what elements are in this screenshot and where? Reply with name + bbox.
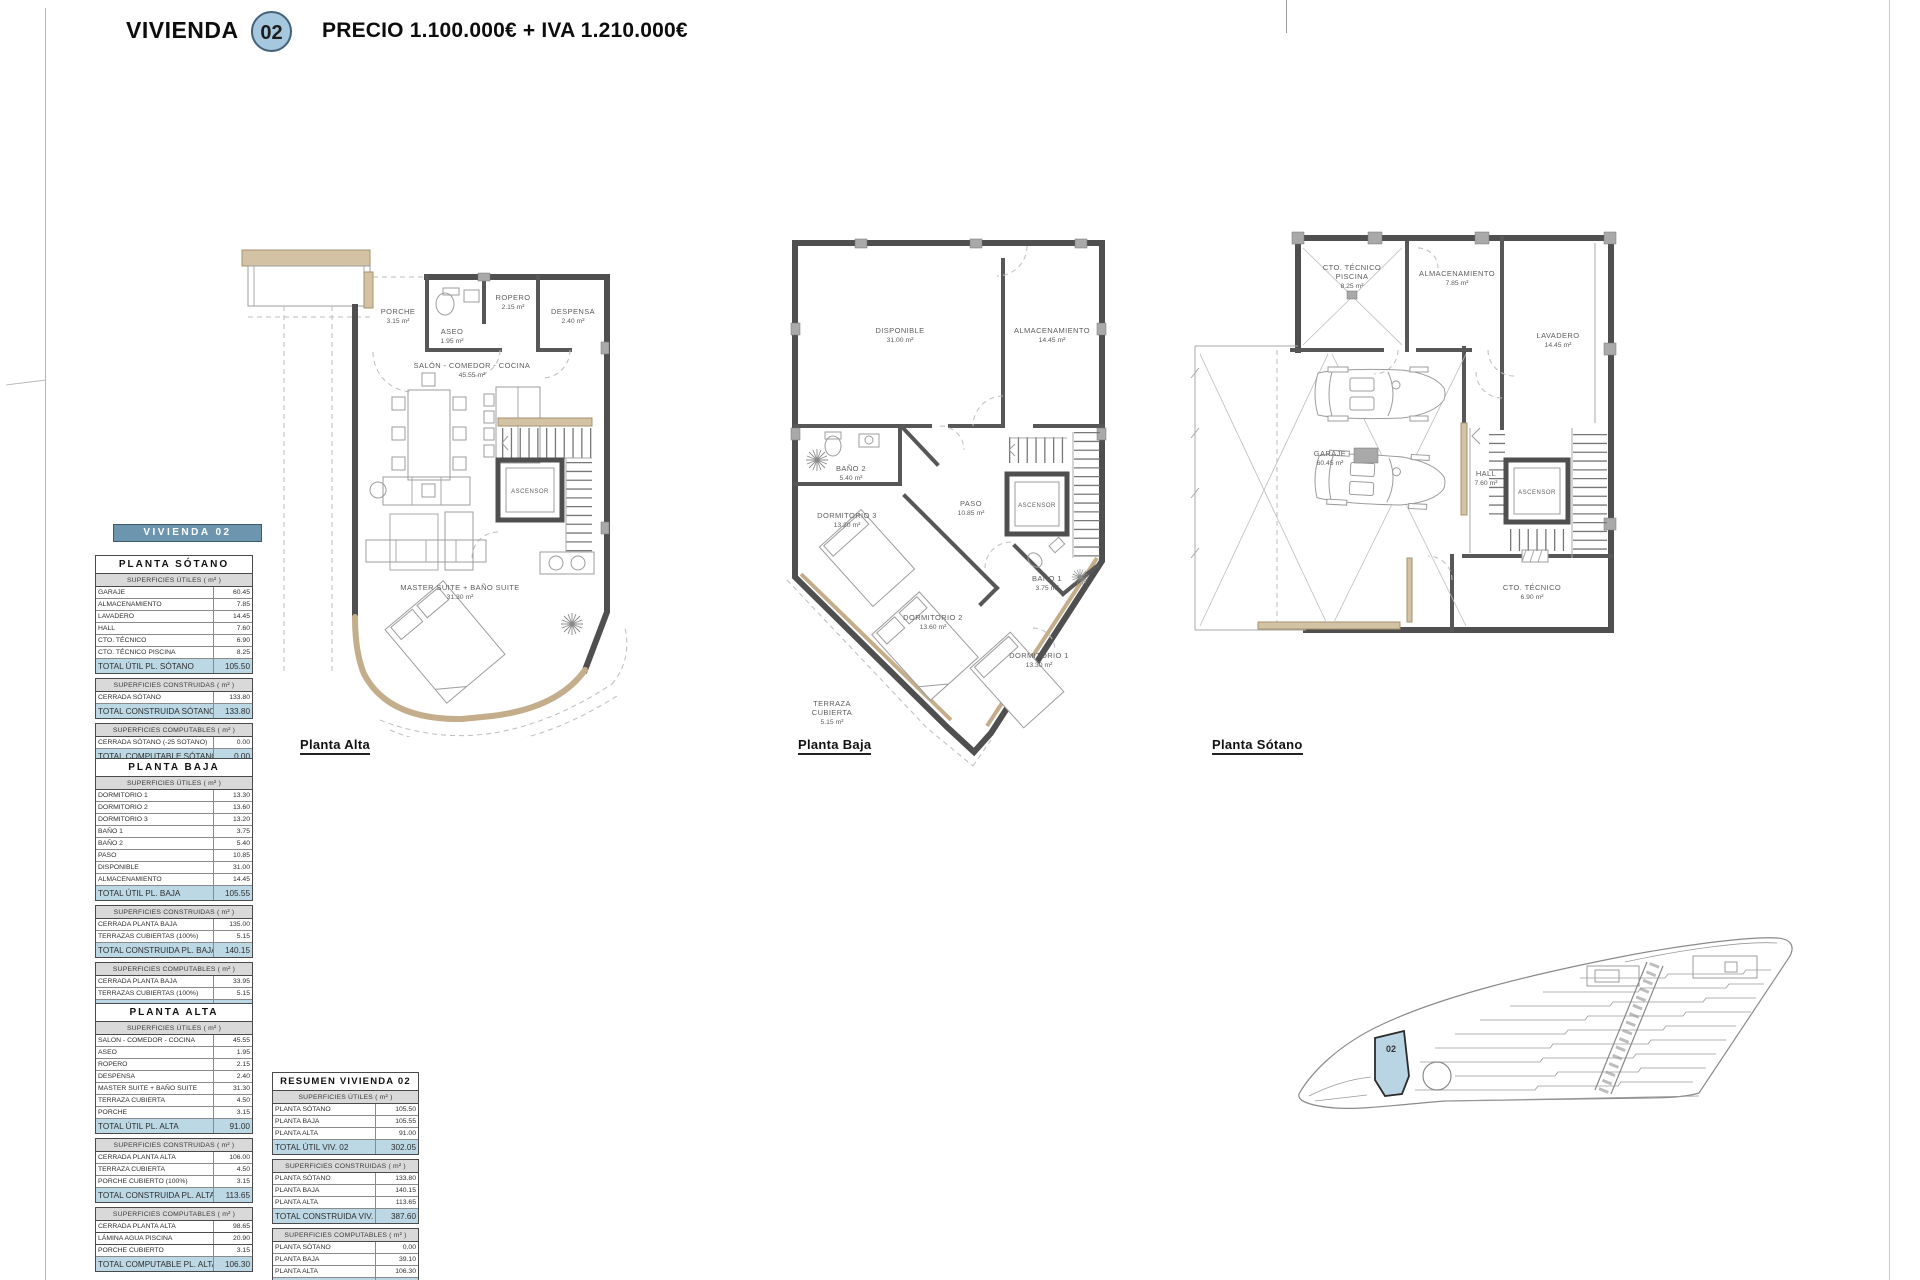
- row-value: 140.15: [376, 1185, 418, 1196]
- svg-text:3.75 m²: 3.75 m²: [1035, 585, 1059, 592]
- svg-text:PASO: PASO: [960, 499, 982, 508]
- table-row: CERRADA SÓTANO133.80: [96, 692, 252, 704]
- table-row: DORMITORIO 213.60: [96, 802, 252, 814]
- row-value: 20.90: [214, 1233, 252, 1244]
- table-row: PLANTA ALTA106.30: [273, 1266, 418, 1278]
- table-total-row: TOTAL CONSTRUIDA PL. BAJA140.15: [96, 943, 252, 957]
- table-row: PLANTA ALTA91.00: [273, 1128, 418, 1140]
- row-label: TERRAZAS CUBIERTAS (100%): [96, 988, 214, 999]
- plan-caption-baja: Planta Baja: [798, 737, 871, 755]
- row-value: 5.15: [214, 931, 252, 942]
- row-label: MASTER SUITE + BAÑO SUITE: [96, 1083, 214, 1094]
- svg-text:DORMITORIO 2: DORMITORIO 2: [903, 613, 963, 622]
- row-label: BAÑO 2: [96, 838, 214, 849]
- row-value: 10.85: [214, 850, 252, 861]
- table-section: SUPERFICIES CONSTRUIDAS ( m² )PLANTA SÓT…: [272, 1159, 419, 1224]
- row-label: TOTAL ÚTIL VIV. 02: [273, 1140, 376, 1154]
- svg-text:PISCINA: PISCINA: [1336, 272, 1369, 281]
- left-border-line: [45, 8, 46, 1280]
- table-row: PLANTA SÓTANO133.80: [273, 1173, 418, 1185]
- row-label: PORCHE CUBIERTO (100%): [96, 1176, 214, 1187]
- floor-plan-sotano-drawing: ASCENSOR CTO. TÉCNICO PISCINA 8.25 m² AL…: [1170, 218, 1630, 703]
- row-value: 13.60: [214, 802, 252, 813]
- svg-text:PORCHE: PORCHE: [381, 307, 416, 316]
- row-label: ASEO: [96, 1047, 214, 1058]
- svg-text:10.85 m²: 10.85 m²: [958, 510, 986, 517]
- row-value: 91.00: [214, 1119, 252, 1133]
- row-label: CERRADA PLANTA BAJA: [96, 976, 214, 987]
- row-label: LÁMINA AGUA PISCINA: [96, 1233, 214, 1244]
- svg-text:60.45 m²: 60.45 m²: [1317, 460, 1345, 467]
- svg-text:2.40 m²: 2.40 m²: [561, 318, 585, 325]
- table-row: PLANTA SÓTANO105.50: [273, 1104, 418, 1116]
- svg-text:3.15 m²: 3.15 m²: [386, 318, 410, 325]
- row-label: DORMITORIO 2: [96, 802, 214, 813]
- table-section-header: SUPERFICIES COMPUTABLES ( m² ): [273, 1229, 418, 1242]
- row-label: TOTAL ÚTIL PL. BAJA: [96, 886, 214, 900]
- row-value: 135.00: [214, 919, 252, 930]
- table-section-header: SUPERFICIES ÚTILES ( m² ): [96, 574, 252, 587]
- row-value: 33.95: [214, 976, 252, 987]
- row-label: ALMACENAMIENTO: [96, 599, 214, 610]
- bed: [872, 592, 978, 700]
- table-total-row: TOTAL CONSTRUIDA PL. ALTA113.65: [96, 1188, 252, 1202]
- table-row: DESPENSA2.40: [96, 1071, 252, 1083]
- table-row: PLANTA SÓTANO0.00: [273, 1242, 418, 1254]
- elevator-box: ASCENSOR: [498, 460, 562, 520]
- svg-text:2.15 m²: 2.15 m²: [501, 304, 525, 311]
- car-icon: [1314, 450, 1447, 511]
- table-row: TERRAZAS CUBIERTAS (100%)5.15: [96, 988, 252, 1000]
- row-label: CERRADA PLANTA ALTA: [96, 1152, 214, 1163]
- floor-plan-alta-drawing: ASCENSOR: [240, 222, 635, 737]
- table-total-row: TOTAL ÚTIL PL. BAJA105.55: [96, 886, 252, 900]
- table-row: TERRAZA CUBIERTA4.50: [96, 1164, 252, 1176]
- table-section: PLANTA BAJASUPERFICIES ÚTILES ( m² )DORM…: [95, 758, 253, 901]
- row-label: CERRADA SÓTANO: [96, 692, 214, 703]
- row-value: 105.55: [376, 1116, 418, 1127]
- svg-text:ROPERO: ROPERO: [496, 293, 531, 302]
- row-label: DORMITORIO 3: [96, 814, 214, 825]
- table-row: LAVADERO14.45: [96, 611, 252, 623]
- table-row: ALMACENAMIENTO14.45: [96, 874, 252, 886]
- row-value: 91.00: [376, 1128, 418, 1139]
- row-label: PLANTA SÓTANO: [273, 1242, 376, 1253]
- table-section: RESUMEN VIVIENDA 02SUPERFICIES ÚTILES ( …: [272, 1072, 419, 1155]
- row-label: TOTAL CONSTRUIDA SÓTANO: [96, 704, 214, 718]
- table-row: TERRAZAS CUBIERTAS (100%)5.15: [96, 931, 252, 943]
- svg-text:DESPENSA: DESPENSA: [551, 307, 595, 316]
- price-text: PRECIO 1.100.000€ + IVA 1.210.000€: [322, 19, 688, 43]
- table-resumen-vivienda-02: RESUMEN VIVIENDA 02SUPERFICIES ÚTILES ( …: [272, 1072, 419, 1280]
- svg-text:13.60 m²: 13.60 m²: [920, 624, 948, 631]
- table-lamina-agua-piscina: LÁMINA AGUA PISCINA20.90: [95, 1232, 253, 1249]
- row-value: 13.30: [214, 790, 252, 801]
- elevator-box: ASCENSOR: [1506, 460, 1568, 522]
- table-row: CERRADA PLANTA ALTA106.00: [96, 1152, 252, 1164]
- table-planta-baja: PLANTA BAJASUPERFICIES ÚTILES ( m² )DORM…: [95, 758, 253, 1019]
- unit-02-highlight: 02: [1375, 1031, 1409, 1096]
- row-value: 3.15: [214, 1107, 252, 1118]
- fan-symbol-icon: [806, 449, 828, 471]
- table-row: MASTER SUITE + BAÑO SUITE31.30: [96, 1083, 252, 1095]
- row-label: DORMITORIO 1: [96, 790, 214, 801]
- table-row: ROPERO2.15: [96, 1059, 252, 1071]
- plan-caption-alta: Planta Alta: [300, 737, 370, 755]
- table-row: PLANTA BAJA140.15: [273, 1185, 418, 1197]
- row-value: 45.55: [214, 1035, 252, 1046]
- table-row: PLANTA BAJA39.10: [273, 1254, 418, 1266]
- table-total-row: TOTAL ÚTIL PL. SÓTANO105.50: [96, 659, 252, 673]
- table-total-row: TOTAL COMPUTABLE PL. ALTA106.30: [96, 1257, 252, 1271]
- right-border-line: [1889, 0, 1890, 1280]
- svg-text:13.30 m²: 13.30 m²: [1026, 662, 1054, 669]
- table-total-row: TOTAL CONSTRUIDA SÓTANO133.80: [96, 704, 252, 718]
- row-label: BAÑO 1: [96, 826, 214, 837]
- row-label: LAVADERO: [96, 611, 214, 622]
- row-label: PLANTA BAJA: [273, 1185, 376, 1196]
- table-section-header: SUPERFICIES CONSTRUIDAS ( m² ): [96, 679, 252, 692]
- row-label: HALL: [96, 623, 214, 634]
- svg-text:ASCENSOR: ASCENSOR: [1018, 503, 1056, 509]
- left-border-tick: [6, 380, 46, 386]
- site-plan-drawing: 02: [1295, 918, 1835, 1148]
- row-label: CERRADA PLANTA ALTA: [96, 1221, 214, 1232]
- row-value: 140.15: [214, 943, 252, 957]
- row-value: 31.00: [214, 862, 252, 873]
- row-label: TOTAL CONSTRUIDA PL. ALTA: [96, 1188, 214, 1202]
- table-row: CTO. TÉCNICO PISCINA8.25: [96, 647, 252, 659]
- svg-text:DORMITORIO 3: DORMITORIO 3: [817, 511, 877, 520]
- svg-text:ASEO: ASEO: [441, 327, 463, 336]
- top-right-line: [1286, 0, 1287, 33]
- row-value: 105.50: [376, 1104, 418, 1115]
- fan-symbol-icon: [1072, 569, 1089, 586]
- svg-text:14.45 m²: 14.45 m²: [1039, 337, 1067, 344]
- row-label: ALMACENAMIENTO: [96, 874, 214, 885]
- fan-symbol-icon: [561, 613, 583, 635]
- car-icon: [1315, 367, 1445, 421]
- row-value: 5.15: [214, 988, 252, 999]
- row-label: DESPENSA: [96, 1071, 214, 1082]
- table-section-header: SUPERFICIES ÚTILES ( m² ): [96, 777, 252, 790]
- table-row: BAÑO 25.40: [96, 838, 252, 850]
- svg-text:HALL: HALL: [1476, 469, 1496, 478]
- table-section: SUPERFICIES CONSTRUIDAS ( m² )CERRADA PL…: [95, 1138, 253, 1203]
- stairs-hatch: [1009, 432, 1087, 558]
- elevator-box: ASCENSOR: [1007, 474, 1067, 534]
- row-label: PLANTA BAJA: [273, 1254, 376, 1265]
- master-bath-sinks: [540, 552, 594, 574]
- vent-hatch: [1522, 550, 1548, 562]
- row-label: GARAJE: [96, 587, 214, 598]
- row-value: 113.65: [214, 1188, 252, 1202]
- table-title: PLANTA SÓTANO: [96, 556, 252, 574]
- row-value: 0.00: [376, 1242, 418, 1253]
- table-section-header: SUPERFICIES COMPUTABLES ( m² ): [96, 963, 252, 976]
- row-label: PLANTA ALTA: [273, 1128, 376, 1139]
- wardrobe: [366, 540, 486, 562]
- svg-text:31.30 m²: 31.30 m²: [447, 594, 475, 601]
- table-title: PLANTA BAJA: [96, 759, 252, 777]
- svg-text:BAÑO 1: BAÑO 1: [1032, 574, 1062, 583]
- row-value: 31.30: [214, 1083, 252, 1094]
- table-total-row: TOTAL ÚTIL PL. ALTA91.00: [96, 1119, 252, 1133]
- row-value: 0.00: [214, 737, 252, 748]
- walls: [1292, 232, 1616, 630]
- svg-text:1.95 m²: 1.95 m²: [440, 338, 464, 345]
- row-value: 1.95: [214, 1047, 252, 1058]
- row-value: 106.30: [376, 1266, 418, 1277]
- svg-text:TERRAZA: TERRAZA: [813, 699, 851, 708]
- table-section: SUPERFICIES CONSTRUIDAS ( m² )CERRADA PL…: [95, 905, 253, 958]
- table-row: CERRADA PLANTA BAJA33.95: [96, 976, 252, 988]
- row-label: DISPONIBLE: [96, 862, 214, 873]
- svg-text:DISPONIBLE: DISPONIBLE: [875, 326, 924, 335]
- svg-text:5.40 m²: 5.40 m²: [839, 475, 863, 482]
- table-row: TERRAZA CUBIERTA4.50: [96, 1095, 252, 1107]
- table-row: PLANTA ALTA113.65: [273, 1197, 418, 1209]
- row-label: PLANTA SÓTANO: [273, 1173, 376, 1184]
- plan-caption-sotano: Planta Sótano: [1212, 737, 1303, 755]
- bed: [385, 581, 505, 703]
- svg-text:7.85 m²: 7.85 m²: [1445, 280, 1469, 287]
- table-section: SUPERFICIES CONSTRUIDAS ( m² )CERRADA SÓ…: [95, 678, 253, 719]
- row-value: 133.80: [376, 1173, 418, 1184]
- table-row: ASEO1.95: [96, 1047, 252, 1059]
- table-row: DORMITORIO 313.20: [96, 814, 252, 826]
- table-row: BAÑO 13.75: [96, 826, 252, 838]
- table-section-header: SUPERFICIES COMPUTABLES ( m² ): [96, 724, 252, 737]
- svg-text:DORMITORIO 1: DORMITORIO 1: [1009, 651, 1069, 660]
- svg-text:ALMACENAMIENTO: ALMACENAMIENTO: [1419, 269, 1495, 278]
- table-row: GARAJE60.45: [96, 587, 252, 599]
- page-title: VIVIENDA: [126, 17, 239, 44]
- table-row: CTO. TÉCNICO6.90: [96, 635, 252, 647]
- svg-text:7.60 m²: 7.60 m²: [1474, 480, 1498, 487]
- table-section: PLANTA ALTASUPERFICIES ÚTILES ( m² )SALO…: [95, 1003, 253, 1134]
- row-label: TOTAL COMPUTABLE PL. ALTA: [96, 1257, 214, 1271]
- row-label: PASO: [96, 850, 214, 861]
- row-value: 106.00: [214, 1152, 252, 1163]
- unit-number-badge: 02: [251, 11, 292, 52]
- svg-text:ALMACENAMIENTO: ALMACENAMIENTO: [1014, 326, 1090, 335]
- table-section-header: SUPERFICIES COMPUTABLES ( m² ): [96, 1208, 252, 1221]
- row-label: PLANTA ALTA: [273, 1197, 376, 1208]
- table-section-header: SUPERFICIES ÚTILES ( m² ): [96, 1022, 252, 1035]
- table-row: DISPONIBLE31.00: [96, 862, 252, 874]
- table-row: SALON - COMEDOR - COCINA45.55: [96, 1035, 252, 1047]
- table-row: CERRADA PLANTA BAJA135.00: [96, 919, 252, 931]
- row-label: CTO. TÉCNICO: [96, 635, 214, 646]
- row-label: TERRAZA CUBIERTA: [96, 1164, 214, 1175]
- table-total-row: TOTAL ÚTIL VIV. 02302.05: [273, 1140, 418, 1154]
- row-label: SALON - COMEDOR - COCINA: [96, 1035, 214, 1046]
- svg-text:CUBIERTA: CUBIERTA: [812, 708, 852, 717]
- table-row: PLANTA BAJA105.55: [273, 1116, 418, 1128]
- table-row: DORMITORIO 113.30: [96, 790, 252, 802]
- floor-plan-baja-drawing: ASCENSOR DISPONIBLE 31.00 m² ALMACENAMIE…: [775, 228, 1120, 773]
- row-value: 39.10: [376, 1254, 418, 1265]
- garage-door-mark: [1354, 448, 1378, 463]
- svg-text:45.55 m²: 45.55 m²: [459, 372, 487, 379]
- row-label: TOTAL CONSTRUIDA PL. BAJA: [96, 943, 214, 957]
- row-label: TOTAL ÚTIL PL. SÓTANO: [96, 659, 214, 673]
- table-section-header: SUPERFICIES ÚTILES ( m² ): [273, 1091, 418, 1104]
- row-value: 3.15: [214, 1176, 252, 1187]
- table-section-header: SUPERFICIES CONSTRUIDAS ( m² ): [273, 1160, 418, 1173]
- table-total-row: TOTAL CONSTRUIDA VIV. 02387.60: [273, 1209, 418, 1223]
- row-label: PLANTA ALTA: [273, 1266, 376, 1277]
- row-value: 302.05: [376, 1140, 418, 1154]
- site-circular-court: [1423, 1062, 1451, 1090]
- table-row: PORCHE CUBIERTO (100%)3.15: [96, 1176, 252, 1188]
- bathroom1-fixtures: [1025, 537, 1064, 570]
- row-value: 14.45: [214, 874, 252, 885]
- row-label: TOTAL CONSTRUIDA VIV. 02: [273, 1209, 376, 1223]
- svg-text:02: 02: [1386, 1044, 1396, 1054]
- svg-text:8.25 m²: 8.25 m²: [1340, 283, 1364, 290]
- svg-text:MASTER SUITE + BAÑO SUITE: MASTER SUITE + BAÑO SUITE: [400, 583, 519, 592]
- row-label: PORCHE: [96, 1107, 214, 1118]
- svg-text:13.20 m²: 13.20 m²: [834, 522, 862, 529]
- row-label: CERRADA PLANTA BAJA: [96, 919, 214, 930]
- table-row: PORCHE3.15: [96, 1107, 252, 1119]
- table-section: LÁMINA AGUA PISCINA20.90: [95, 1232, 253, 1245]
- table-section: PLANTA SÓTANOSUPERFICIES ÚTILES ( m² )GA…: [95, 555, 253, 674]
- row-value: 4.50: [214, 1095, 252, 1106]
- table-row: HALL7.60: [96, 623, 252, 635]
- table-section: SUPERFICIES COMPUTABLES ( m² )PLANTA SÓT…: [272, 1228, 419, 1280]
- table-row: LÁMINA AGUA PISCINA20.90: [96, 1233, 252, 1244]
- row-value: 106.30: [214, 1257, 252, 1271]
- svg-text:CTO. TÉCNICO: CTO. TÉCNICO: [1323, 263, 1381, 272]
- table-row: CERRADA SÓTANO (-25 SOTANO)0.00: [96, 737, 252, 749]
- dining-table: [392, 373, 466, 497]
- row-value: 98.65: [214, 1221, 252, 1232]
- table-title: PLANTA ALTA: [96, 1004, 252, 1022]
- svg-text:31.00 m²: 31.00 m²: [887, 337, 915, 344]
- room-labels: PORCHE 3.15 m² ASEO 1.95 m² ROPERO 2.15 …: [381, 293, 595, 601]
- plan-sheet: VIVIENDA 02 PRECIO 1.100.000€ + IVA 1.21…: [0, 0, 1920, 1280]
- row-label: TERRAZA CUBIERTA: [96, 1095, 214, 1106]
- row-value: 105.55: [214, 886, 252, 900]
- garage-cross-bracing: [1200, 248, 1466, 626]
- svg-text:LAVADERO: LAVADERO: [1537, 331, 1580, 340]
- row-label: TOTAL ÚTIL PL. ALTA: [96, 1119, 214, 1133]
- svg-text:5.15 m²: 5.15 m²: [820, 719, 844, 726]
- row-label: CTO. TÉCNICO PISCINA: [96, 647, 214, 658]
- svg-text:ASCENSOR: ASCENSOR: [1518, 490, 1556, 496]
- row-value: 387.60: [376, 1209, 418, 1223]
- svg-text:14.45 m²: 14.45 m²: [1545, 342, 1573, 349]
- svg-text:6.90 m²: 6.90 m²: [1520, 594, 1544, 601]
- site-outline: [1299, 938, 1792, 1109]
- row-label: CERRADA SÓTANO (-25 SOTANO): [96, 737, 214, 748]
- row-value: 3.75: [214, 826, 252, 837]
- row-label: ROPERO: [96, 1059, 214, 1070]
- svg-text:ASCENSOR: ASCENSOR: [511, 489, 549, 495]
- bathroom2-fixtures: [825, 432, 879, 456]
- table-section-header: SUPERFICIES CONSTRUIDAS ( m² ): [96, 906, 252, 919]
- stairs-hatch: [498, 418, 592, 552]
- bathroom-fixtures: [436, 288, 479, 315]
- svg-text:BAÑO 2: BAÑO 2: [836, 464, 866, 473]
- row-value: 2.15: [214, 1059, 252, 1070]
- svg-text:CTO. TÉCNICO: CTO. TÉCNICO: [1503, 583, 1561, 592]
- row-value: 13.20: [214, 814, 252, 825]
- row-label: PLANTA BAJA: [273, 1116, 376, 1127]
- table-row: ALMACENAMIENTO7.85: [96, 599, 252, 611]
- row-value: 113.65: [376, 1197, 418, 1208]
- table-title: RESUMEN VIVIENDA 02: [273, 1073, 418, 1091]
- row-label: PLANTA SÓTANO: [273, 1104, 376, 1115]
- table-row: PASO10.85: [96, 850, 252, 862]
- table-planta-sotano: PLANTA SÓTANOSUPERFICIES ÚTILES ( m² )GA…: [95, 555, 253, 768]
- svg-text:GARAJE: GARAJE: [1314, 449, 1346, 458]
- svg-text:SALÓN - COMEDOR - COCINA: SALÓN - COMEDOR - COCINA: [414, 361, 531, 370]
- row-value: 5.40: [214, 838, 252, 849]
- row-label: TERRAZAS CUBIERTAS (100%): [96, 931, 214, 942]
- table-section-header: SUPERFICIES CONSTRUIDAS ( m² ): [96, 1139, 252, 1152]
- row-value: 4.50: [214, 1164, 252, 1175]
- row-value: 2.40: [214, 1071, 252, 1082]
